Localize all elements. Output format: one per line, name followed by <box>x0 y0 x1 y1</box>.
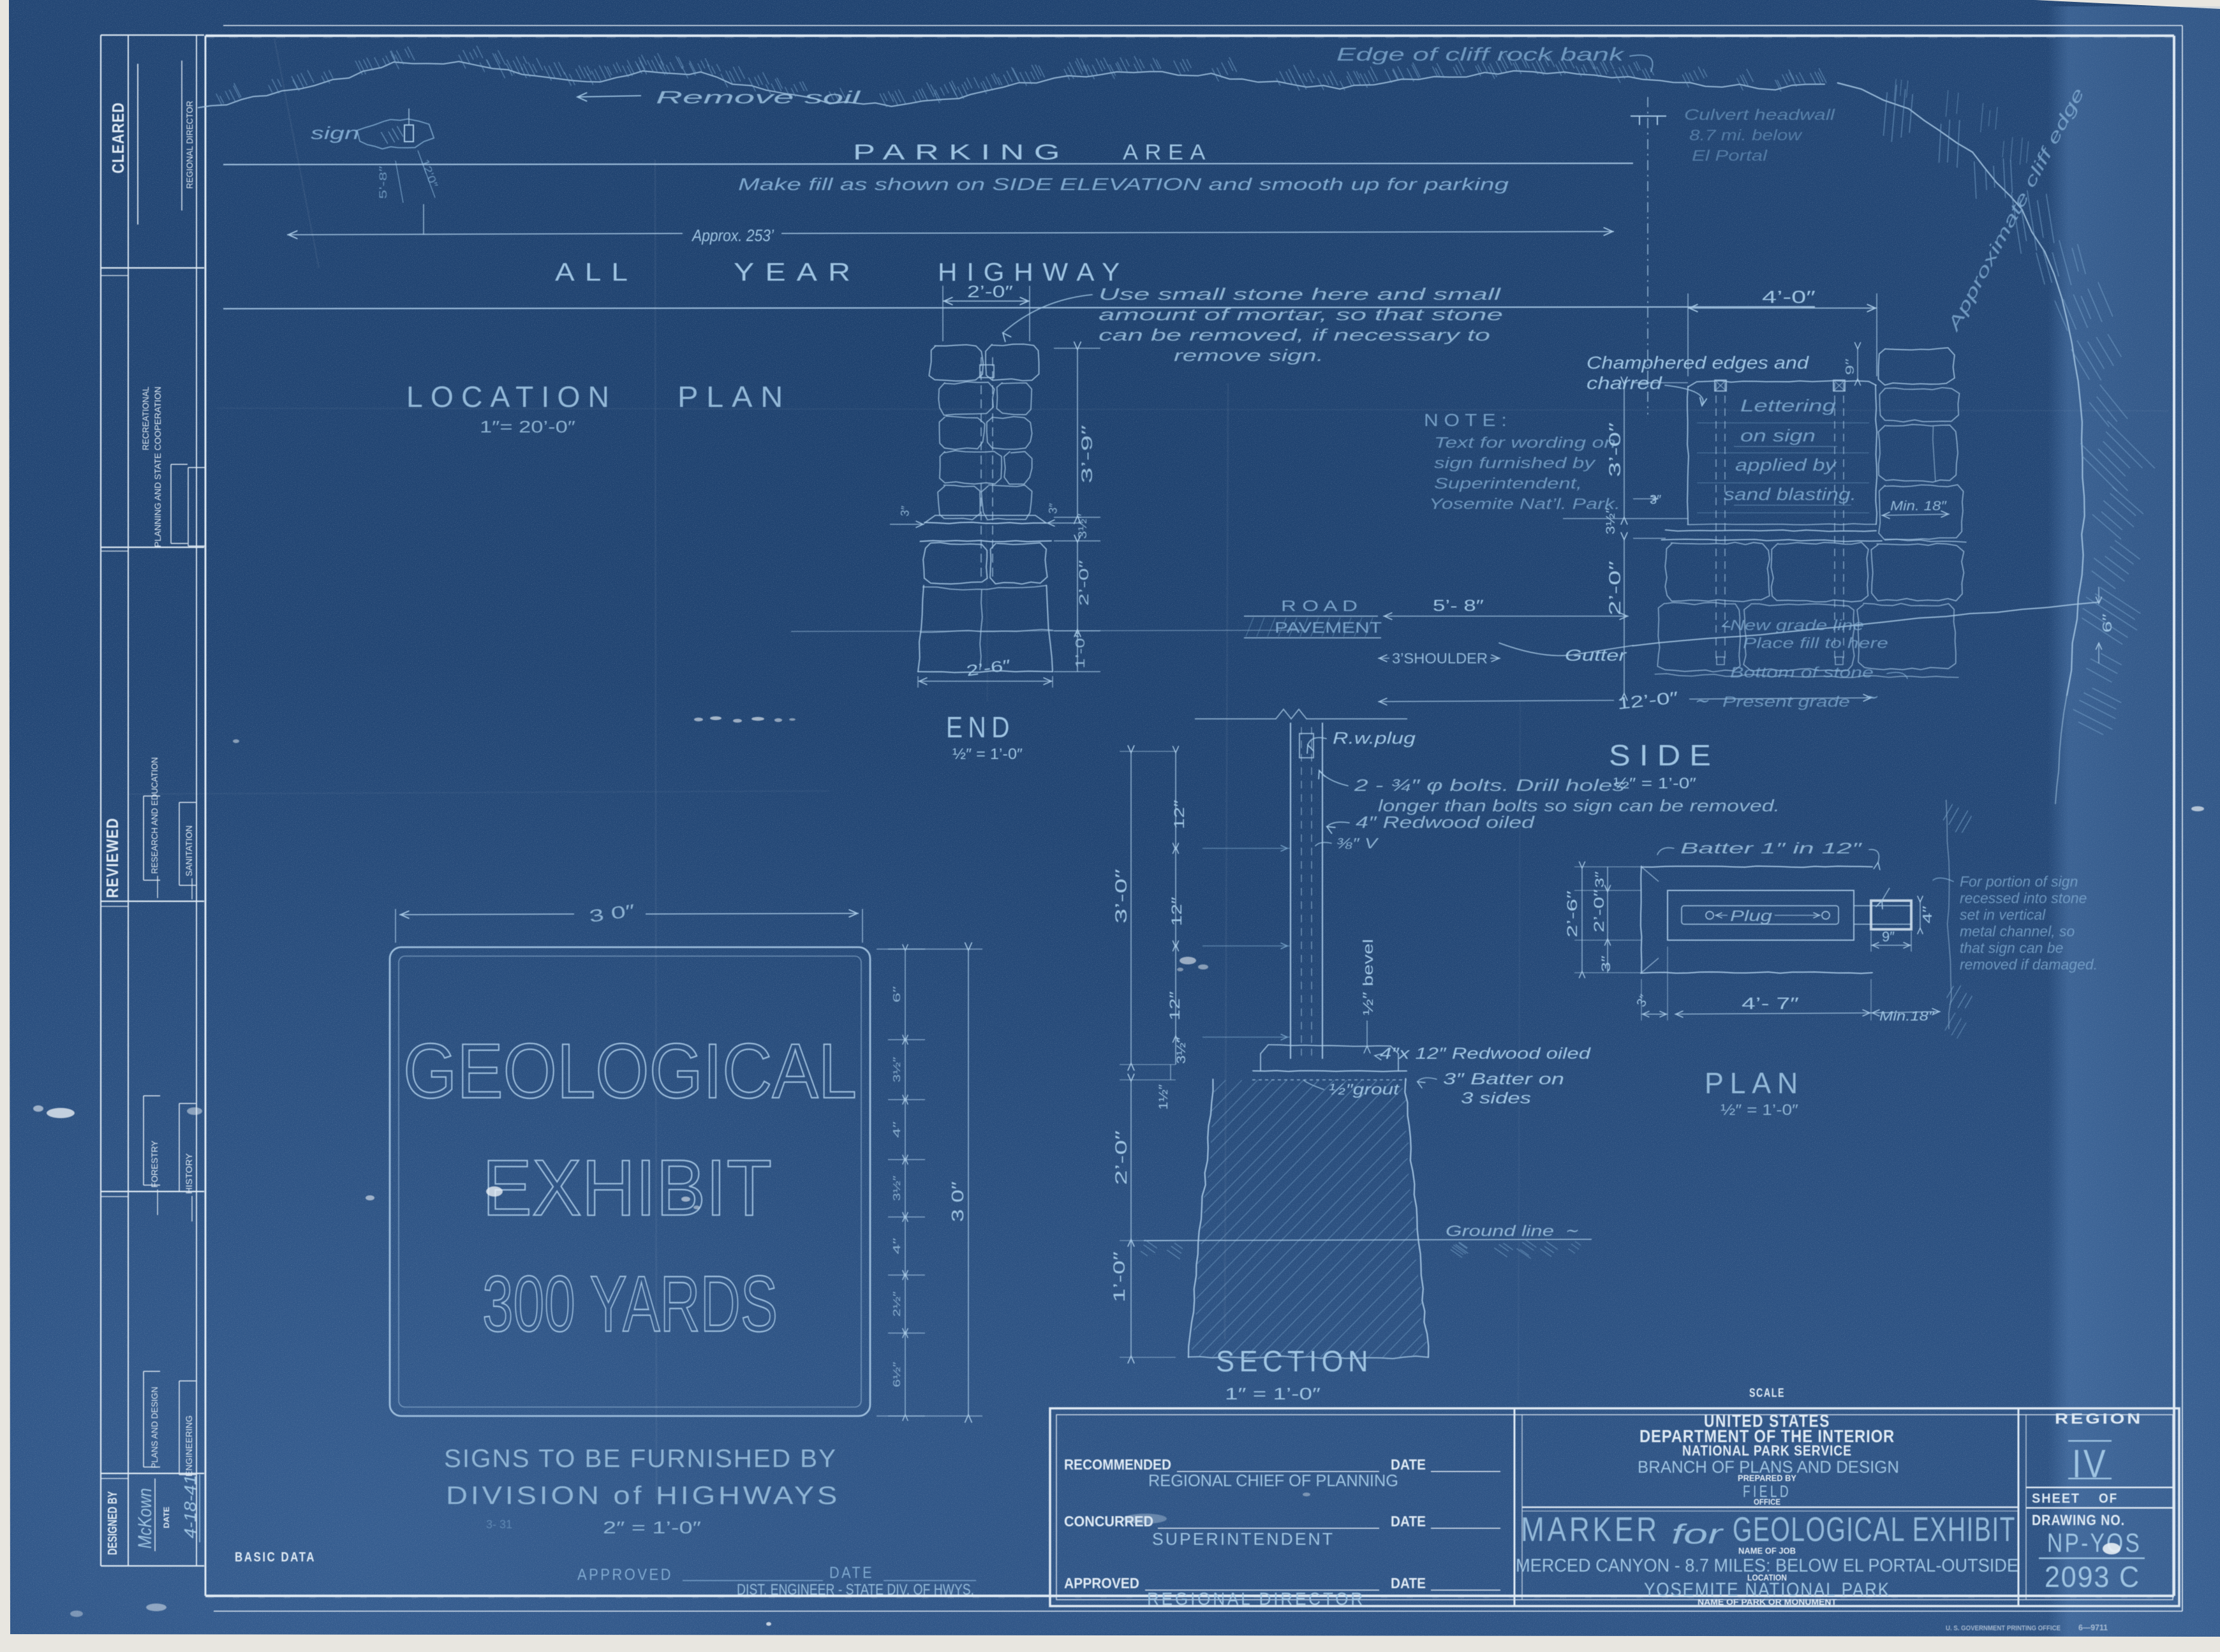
svg-text:3½″: 3½″ <box>892 1176 903 1201</box>
svg-text:REGION: REGION <box>2055 1410 2143 1427</box>
svg-text:2093 C: 2093 C <box>2045 1560 2140 1593</box>
svg-text:½″ = 1’-0″: ½″ = 1’-0″ <box>952 746 1023 763</box>
svg-text:Culvert headwall: Culvert headwall <box>1684 107 1835 124</box>
svg-text:1″= 20’-0″: 1″= 20’-0″ <box>480 417 575 436</box>
svg-text:6½″: 6½″ <box>892 1362 903 1387</box>
svg-text:Yosemite Nat’l. Park.: Yosemite Nat’l. Park. <box>1429 496 1620 513</box>
svg-text:amount of mortar, so that ston: amount of mortar, so that stone <box>1099 305 1503 324</box>
svg-text:6″: 6″ <box>892 985 903 1003</box>
svg-text:FORESTRY: FORESTRY <box>149 1140 159 1188</box>
svg-text:recessed into stone: recessed into stone <box>1960 890 2087 906</box>
svg-text:DRAWING NO.: DRAWING NO. <box>2032 1512 2125 1528</box>
svg-text:½″ = 1’-0″: ½″ = 1’-0″ <box>1721 1102 1799 1119</box>
svg-text:HIGHWAY: HIGHWAY <box>938 258 1129 286</box>
svg-text:∼: ∼ <box>1863 687 1878 707</box>
svg-text:applied by: applied by <box>1735 455 1837 475</box>
svg-text:HISTORY: HISTORY <box>184 1153 194 1194</box>
svg-text:6—9711: 6—9711 <box>2078 1623 2108 1632</box>
svg-text:RESEARCH AND EDUCATION: RESEARCH AND EDUCATION <box>149 757 159 874</box>
svg-text:NATIONAL PARK SERVICE: NATIONAL PARK SERVICE <box>1682 1442 1852 1459</box>
svg-text:ENGINEERING: ENGINEERING <box>184 1415 194 1477</box>
svg-text:∼: ∼ <box>1564 1221 1578 1240</box>
svg-text:1½″: 1½″ <box>1157 1084 1171 1110</box>
svg-text:Approx. 253’: Approx. 253’ <box>691 226 774 245</box>
svg-text:remove sign.: remove sign. <box>1174 346 1324 365</box>
svg-text:PLAN: PLAN <box>1705 1066 1804 1100</box>
svg-text:Lettering: Lettering <box>1740 396 1836 415</box>
svg-text:3- 31: 3- 31 <box>486 1518 512 1531</box>
svg-text:BASIC DATA: BASIC DATA <box>235 1550 316 1565</box>
svg-text:metal channel, so: metal channel, so <box>1960 923 2075 940</box>
svg-text:3’-0″: 3’-0″ <box>1606 422 1624 477</box>
svg-text:For portion of sign: For portion of sign <box>1960 873 2078 890</box>
svg-text:Gutter: Gutter <box>1565 647 1627 665</box>
svg-text:4″: 4″ <box>1921 906 1935 924</box>
svg-text:9″: 9″ <box>1882 929 1895 945</box>
svg-text:1’-0″: 1’-0″ <box>1111 1251 1128 1302</box>
svg-text:⅜″ V: ⅜″ V <box>1336 835 1379 852</box>
svg-text:MARKER: MARKER <box>1521 1510 1660 1549</box>
svg-text:2’-6″: 2’-6″ <box>1564 890 1580 938</box>
svg-text:3″ Batter on: 3″ Batter on <box>1443 1070 1564 1088</box>
svg-text:can be removed, if necessary t: can be removed, if necessary to <box>1099 325 1490 344</box>
svg-text:ALL: ALL <box>555 258 638 286</box>
svg-text:sand blasting.: sand blasting. <box>1724 485 1856 504</box>
svg-text:Text for wording on: Text for wording on <box>1434 434 1616 452</box>
svg-text:5'-8″: 5'-8″ <box>377 166 389 199</box>
svg-text:GEOLOGICAL EXHIBIT: GEOLOGICAL EXHIBIT <box>1733 1510 2016 1549</box>
svg-text:OF: OF <box>2099 1491 2118 1506</box>
svg-text:3½″: 3½″ <box>1175 1037 1188 1064</box>
svg-text:3″: 3″ <box>1600 955 1613 972</box>
svg-text:removed if damaged.: removed if damaged. <box>1960 956 2098 973</box>
svg-text:PLANS AND DESIGN: PLANS AND DESIGN <box>149 1387 159 1468</box>
svg-text:SUPERINTENDENT: SUPERINTENDENT <box>1152 1530 1335 1549</box>
svg-text:3’-0″: 3’-0″ <box>1113 869 1130 924</box>
svg-text:12″: 12″ <box>1171 800 1187 829</box>
svg-text:M‌c‌K‌o‌w‌n: M‌c‌K‌o‌w‌n <box>135 1488 156 1549</box>
svg-text:Bottom of stone: Bottom of stone <box>1730 664 1874 681</box>
svg-text:sign: sign <box>311 123 359 143</box>
svg-text:NP-YOS: NP-YOS <box>2047 1528 2142 1558</box>
svg-text:4″: 4″ <box>892 1121 903 1138</box>
svg-text:Champhered edges and: Champhered edges and <box>1587 353 1810 372</box>
svg-text:Superintendent,: Superintendent, <box>1434 475 1582 492</box>
svg-text:REGIONAL CHIEF OF PLANNING: REGIONAL CHIEF OF PLANNING <box>1148 1471 1398 1490</box>
svg-text:3½″: 3½″ <box>1076 513 1089 539</box>
svg-text:6″: 6″ <box>2101 614 2115 633</box>
svg-text:4″ Redwood oiled: 4″ Redwood oiled <box>1356 813 1536 832</box>
svg-text:½″ = 1’-0″: ½″ = 1’-0″ <box>1613 775 1697 792</box>
svg-text:YEAR: YEAR <box>734 258 861 286</box>
svg-text:PARKING: PARKING <box>853 140 1070 165</box>
svg-text:SHEET: SHEET <box>2032 1491 2080 1506</box>
svg-text:12″: 12″ <box>1169 897 1185 926</box>
svg-text:Batter 1″ in 12″: Batter 1″ in 12″ <box>1680 840 1863 857</box>
svg-text:AREA: AREA <box>1123 140 1212 165</box>
svg-text:SECTION: SECTION <box>1216 1345 1373 1378</box>
svg-text:SANITATION: SANITATION <box>184 825 194 876</box>
svg-text:DIVISION of HIGHWAYS: DIVISION of HIGHWAYS <box>446 1482 840 1510</box>
svg-text:REVIEWED: REVIEWED <box>103 818 122 898</box>
svg-text:4’- 7″: 4’- 7″ <box>1742 994 1799 1013</box>
svg-text:2’-0″: 2’-0″ <box>1113 1130 1130 1185</box>
svg-text:APPROVED: APPROVED <box>577 1566 673 1584</box>
svg-text:CLEARED: CLEARED <box>108 102 128 173</box>
svg-text:RECREATIONAL: RECREATIONAL <box>140 387 151 450</box>
svg-text:REGIONAL DIRECTOR: REGIONAL DIRECTOR <box>184 101 195 189</box>
svg-text:2’-0″: 2’-0″ <box>1077 559 1091 606</box>
svg-text:END: END <box>946 711 1015 744</box>
svg-text:IV: IV <box>2072 1442 2108 1486</box>
svg-text:1″ = 1’-0″: 1″ = 1’-0″ <box>1225 1384 1321 1403</box>
svg-text:DATE: DATE <box>162 1507 171 1528</box>
svg-text:3 0″: 3 0″ <box>948 1181 967 1222</box>
svg-text:SCALE: SCALE <box>1749 1387 1785 1400</box>
svg-text:set in vertical: set in vertical <box>1960 906 2046 923</box>
svg-text:DATE: DATE <box>1391 1575 1426 1591</box>
svg-text:4″x 12″ Redwood oiled: 4″x 12″ Redwood oiled <box>1380 1045 1591 1063</box>
svg-text:2″ = 1’-0″: 2″ = 1’-0″ <box>603 1518 702 1537</box>
svg-text:PLANNING AND STATE COOPERATION: PLANNING AND STATE COOPERATION <box>152 387 163 547</box>
svg-text:3½″: 3½″ <box>1604 508 1618 535</box>
svg-text:DATE: DATE <box>829 1564 874 1582</box>
svg-text:sign furnished by: sign furnished by <box>1434 455 1597 472</box>
svg-text:2½″: 2½″ <box>892 1291 903 1316</box>
svg-text:R.w.plug: R.w.plug <box>1333 728 1416 748</box>
svg-text:EXHIBIT: EXHIBIT <box>482 1144 772 1232</box>
svg-text:∼: ∼ <box>1694 691 1709 711</box>
svg-text:3 sides: 3 sides <box>1461 1089 1531 1107</box>
svg-text:4″: 4″ <box>892 1237 903 1255</box>
svg-text:300 YARDS: 300 YARDS <box>482 1260 778 1348</box>
svg-text:that sign can be: that sign can be <box>1960 940 2063 956</box>
svg-text:N O T E :: N O T E : <box>1424 410 1507 430</box>
svg-text:REGIONAL DIRECTOR: REGIONAL DIRECTOR <box>1147 1589 1365 1609</box>
svg-text:Min.18″: Min.18″ <box>1879 1009 1935 1024</box>
svg-text:GEOLOGICAL: GEOLOGICAL <box>403 1028 857 1114</box>
svg-text:4’-0″: 4’-0″ <box>1762 287 1816 307</box>
svg-text:3½″: 3½″ <box>892 1057 903 1082</box>
svg-text:Place fill to here: Place fill to here <box>1743 635 1888 651</box>
svg-text:on sign: on sign <box>1740 426 1816 445</box>
svg-text:OFFICE: OFFICE <box>1754 1497 1780 1507</box>
svg-text:APPROVED: APPROVED <box>1064 1575 1139 1591</box>
svg-text:2’-0″: 2’-0″ <box>1591 889 1607 933</box>
svg-text:Plug: Plug <box>1730 908 1773 925</box>
svg-text:S I D E: S I D E <box>1609 739 1711 772</box>
svg-text:3’SHOULDER: 3’SHOULDER <box>1392 650 1488 667</box>
svg-text:1’-0″: 1’-0″ <box>1074 631 1088 668</box>
svg-text:El Portal: El Portal <box>1692 147 1768 165</box>
svg-text:Ground line: Ground line <box>1446 1223 1554 1240</box>
svg-text:Make fill as shown on SIDE ELE: Make fill as shown on SIDE ELEVATION and… <box>738 175 1509 194</box>
svg-text:5’- 8″: 5’- 8″ <box>1433 597 1484 615</box>
svg-text:U. S. GOVERNMENT PRINTING OFFI: U. S. GOVERNMENT PRINTING OFFICE <box>1946 1625 2061 1632</box>
svg-text:9″: 9″ <box>1844 358 1856 375</box>
svg-text:Remove soil: Remove soil <box>656 87 861 107</box>
svg-text:3″: 3″ <box>1046 503 1060 515</box>
svg-text:DATE: DATE <box>1391 1513 1426 1530</box>
svg-text:Min. 18″: Min. 18″ <box>1890 499 1948 513</box>
svg-text:for: for <box>1671 1519 1725 1550</box>
svg-text:Use small stone here and small: Use small stone here and small <box>1099 284 1502 304</box>
svg-text:SIGNS TO BE FURNISHED BY: SIGNS TO BE FURNISHED BY <box>444 1445 837 1473</box>
svg-text:NAME OF PARK OR MONUMENT: NAME OF PARK OR MONUMENT <box>1698 1597 1837 1607</box>
svg-text:2’-0″: 2’-0″ <box>1606 561 1624 616</box>
svg-text:R O A D: R O A D <box>1281 598 1358 615</box>
svg-text:DESIGNED BY: DESIGNED BY <box>106 1491 120 1555</box>
svg-text:NAME OF JOB: NAME OF JOB <box>1738 1545 1796 1556</box>
svg-text:½″ bevel: ½″ bevel <box>1360 939 1376 1015</box>
svg-text:8.7 mi. below: 8.7 mi. below <box>1689 127 1803 144</box>
svg-text:2 - ¾″ φ bolts. Drill holes: 2 - ¾″ φ bolts. Drill holes <box>1354 776 1625 795</box>
svg-text:2’-0″: 2’-0″ <box>967 282 1013 301</box>
svg-text:3’-9″: 3’-9″ <box>1079 424 1096 483</box>
svg-text:Edge of cliff rock bank: Edge of cliff rock bank <box>1336 45 1625 65</box>
svg-text:4-18-41: 4-18-41 <box>181 1475 200 1538</box>
svg-text:12″: 12″ <box>1167 991 1183 1021</box>
svg-text:Present grade: Present grade <box>1722 693 1850 710</box>
svg-text:DIST. ENGINEER - STATE DIV. OF: DIST. ENGINEER - STATE DIV. OF HWYS. <box>737 1581 974 1598</box>
svg-text:New grade line: New grade line <box>1730 617 1864 633</box>
svg-text:3″: 3″ <box>898 505 912 517</box>
